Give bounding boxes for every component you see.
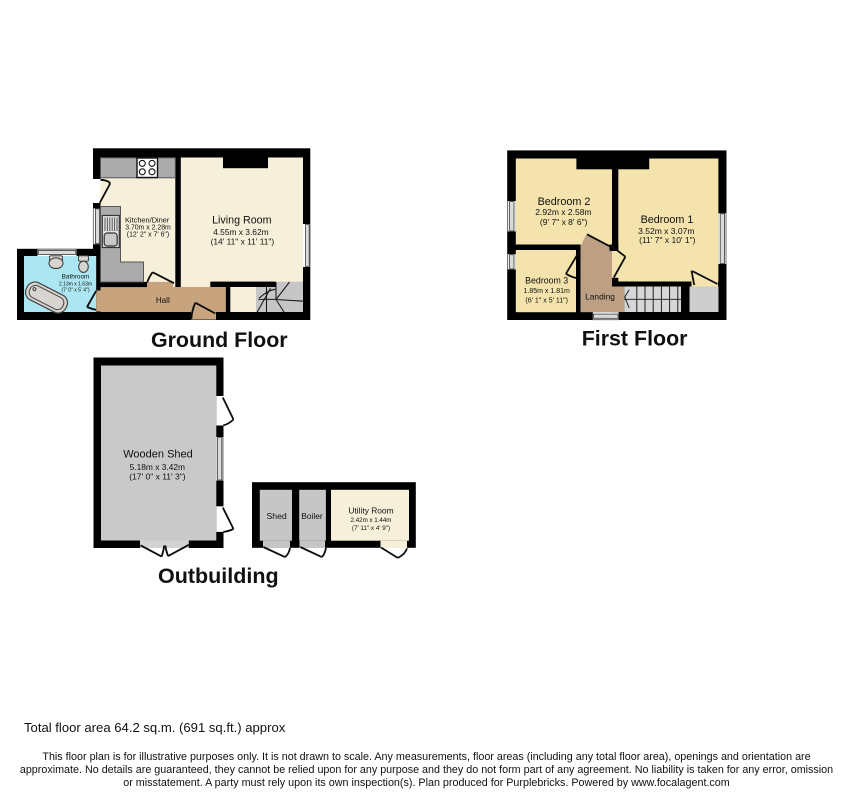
svg-text:1.85m x 1.81m: 1.85m x 1.81m [524,288,570,295]
svg-text:(6' 1" x 5' 11"): (6' 1" x 5' 11") [525,297,568,304]
svg-text:This floor plan is for illustr: This floor plan is for illustrative purp… [42,751,810,763]
svg-text:Utility Room: Utility Room [348,505,393,515]
svg-text:Bedroom 3: Bedroom 3 [525,276,568,286]
svg-text:(14' 11" x 11' 11"): (14' 11" x 11' 11") [211,236,275,246]
svg-text:(9' 7" x 8' 6"): (9' 7" x 8' 6") [540,217,588,227]
svg-text:Kitchen/Diner: Kitchen/Diner [125,215,170,224]
svg-text:Bedroom 1: Bedroom 1 [641,214,694,226]
svg-text:Shed: Shed [266,511,286,521]
svg-text:(17' 0" x 11' 3"): (17' 0" x 11' 3") [129,471,186,481]
svg-text:(11' 7" x 10' 1"): (11' 7" x 10' 1") [639,235,696,245]
svg-text:Outbuilding: Outbuilding [158,564,279,588]
svg-text:Hall: Hall [156,296,170,305]
svg-text:2.42m x 1.44m: 2.42m x 1.44m [351,517,392,524]
svg-text:Ground Floor: Ground Floor [151,328,288,352]
svg-text:Bathroom: Bathroom [62,274,90,281]
svg-text:Landing: Landing [585,292,615,302]
svg-text:Living Room: Living Room [212,215,271,227]
svg-text:First Floor: First Floor [582,327,688,351]
svg-text:Boiler: Boiler [301,511,323,521]
svg-text:4.55m x 3.62m: 4.55m x 3.62m [213,227,268,237]
svg-text:(12' 2" x 7' 6"): (12' 2" x 7' 6") [127,231,169,238]
svg-text:or misstatement. A party must: or misstatement. A party must rely upon … [123,777,730,789]
svg-text:2.92m x 2.58m: 2.92m x 2.58m [535,207,591,217]
svg-text:Wooden Shed: Wooden Shed [123,448,193,460]
svg-text:Total floor area 64.2 sq.m. (6: Total floor area 64.2 sq.m. (691 sq.ft.)… [24,720,286,735]
svg-text:approximate. No details are gu: approximate. No details are guaranteed, … [20,764,833,776]
svg-text:(7' 0" x 5' 4"): (7' 0" x 5' 4") [62,288,90,294]
svg-text:(7' 11" x 4' 9"): (7' 11" x 4' 9") [352,525,390,532]
